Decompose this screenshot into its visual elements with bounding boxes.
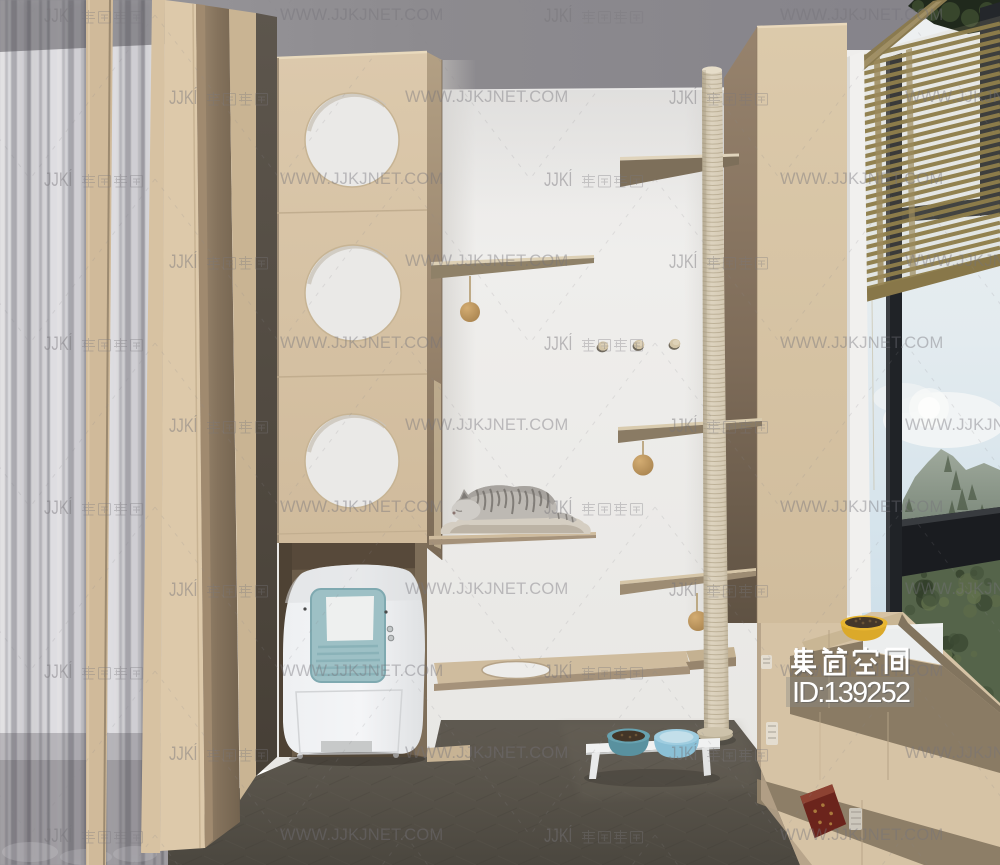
svg-text:JJKĺ: JJKĺ (44, 5, 73, 27)
svg-text:WWW.JJKJNET.COM: WWW.JJKJNET.COM (405, 580, 568, 598)
svg-text:JJKĺ: JJKĺ (669, 743, 698, 765)
svg-text:WWW.JJKJNET.COM: WWW.JJKJNET.COM (780, 826, 943, 844)
svg-text:JJKĺ: JJKĺ (44, 497, 73, 519)
svg-text:JJKĺ: JJKĺ (44, 333, 73, 355)
svg-text:JJKĺ: JJKĺ (669, 415, 698, 437)
svg-text:WWW.JJKJNET.COM: WWW.JJKJNET.COM (905, 416, 1000, 434)
svg-text:JJKĺ: JJKĺ (44, 661, 73, 683)
svg-text:ID:139252: ID:139252 (792, 677, 911, 709)
svg-text:WWW.JJKJNET.COM: WWW.JJKJNET.COM (280, 6, 443, 24)
svg-text:JJKĺ: JJKĺ (169, 415, 198, 437)
svg-text:WWW.JJKJNET.COM: WWW.JJKJNET.COM (780, 170, 943, 188)
svg-text:WWW.JJKJNET.COM: WWW.JJKJNET.COM (280, 662, 443, 680)
svg-text:WWW.JJKJNET.COM: WWW.JJKJNET.COM (905, 744, 1000, 762)
svg-text:JJKĺ: JJKĺ (44, 169, 73, 191)
svg-text:JJKĺ: JJKĺ (544, 497, 573, 519)
svg-text:WWW.JJKJNET.COM: WWW.JJKJNET.COM (405, 416, 568, 434)
svg-text:JJKĺ: JJKĺ (669, 251, 698, 273)
svg-text:JJKĺ: JJKĺ (544, 169, 573, 191)
svg-text:JJKĺ: JJKĺ (169, 579, 198, 601)
svg-text:JJKĺ: JJKĺ (169, 743, 198, 765)
svg-text:WWW.JJKJNET.COM: WWW.JJKJNET.COM (780, 6, 943, 24)
svg-text:JJKĺ: JJKĺ (169, 87, 198, 109)
svg-text:WWW.JJKJNET.COM: WWW.JJKJNET.COM (905, 580, 1000, 598)
svg-text:WWW.JJKJNET.COM: WWW.JJKJNET.COM (780, 334, 943, 352)
svg-text:WWW.JJKJNET.COM: WWW.JJKJNET.COM (780, 498, 943, 516)
svg-text:WWW.JJKJNET.COM: WWW.JJKJNET.COM (405, 88, 568, 106)
svg-text:WWW.JJKJNET.COM: WWW.JJKJNET.COM (280, 498, 443, 516)
svg-text:WWW.JJKJNET.COM: WWW.JJKJNET.COM (280, 170, 443, 188)
svg-text:JJKĺ: JJKĺ (544, 661, 573, 683)
svg-text:JJKĺ: JJKĺ (169, 251, 198, 273)
svg-text:JJKĺ: JJKĺ (669, 87, 698, 109)
svg-text:WWW.JJKJNET.COM: WWW.JJKJNET.COM (905, 252, 1000, 270)
svg-text:JJKĺ: JJKĺ (669, 579, 698, 601)
svg-text:WWW.JJKJNET.COM: WWW.JJKJNET.COM (905, 88, 1000, 106)
svg-text:JJKĺ: JJKĺ (544, 825, 573, 847)
svg-text:JJKĺ: JJKĺ (44, 825, 73, 847)
svg-text:JJKĺ: JJKĺ (544, 333, 573, 355)
svg-text:JJKĺ: JJKĺ (544, 5, 573, 27)
svg-text:WWW.JJKJNET.COM: WWW.JJKJNET.COM (280, 334, 443, 352)
svg-text:WWW.JJKJNET.COM: WWW.JJKJNET.COM (405, 744, 568, 762)
svg-text:WWW.JJKJNET.COM: WWW.JJKJNET.COM (405, 252, 568, 270)
svg-text:WWW.JJKJNET.COM: WWW.JJKJNET.COM (280, 826, 443, 844)
